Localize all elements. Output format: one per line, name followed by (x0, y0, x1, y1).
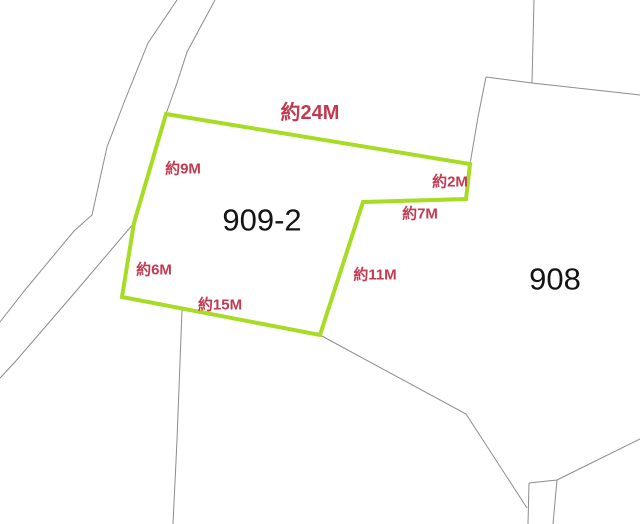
dimension-label: 約2M (432, 173, 468, 191)
dimension-label: 約11M (353, 266, 396, 284)
boundary-line-north-east-boundary (486, 77, 640, 95)
boundary-line-west-908-boundary (470, 77, 486, 164)
boundary-line-strip-right-edge (553, 480, 557, 524)
dimension-label: 約6M (136, 261, 172, 279)
boundary-line-southeast-boundary (557, 439, 640, 480)
parcel-number-label-908: 908 (529, 262, 581, 297)
boundary-line-road-right-edge-lower (0, 223, 134, 378)
dimension-label: 約7M (402, 205, 438, 223)
dimension-label: 約15M (198, 296, 242, 314)
boundary-line-strip-top-edge (529, 480, 557, 483)
dimension-label: 約24M (281, 100, 340, 124)
boundary-line-strip-left-edge (528, 483, 529, 524)
cadastral-map-canvas: 約24M約9M約2M約7M約11M約6M約15M909-2908 (0, 0, 640, 524)
boundary-line-north-vertical-boundary (532, 0, 534, 83)
cadastral-map: 約24M約9M約2M約7M約11M約6M約15M909-2908 (0, 0, 640, 524)
parcel-number-label-909-2: 909-2 (222, 203, 301, 238)
boundary-line-road-right-edge-upper (166, 0, 215, 114)
dimension-label: 約9M (165, 160, 201, 178)
boundary-line-south-908-boundary (320, 335, 527, 508)
boundary-line-south-vertical-boundary (173, 310, 182, 524)
